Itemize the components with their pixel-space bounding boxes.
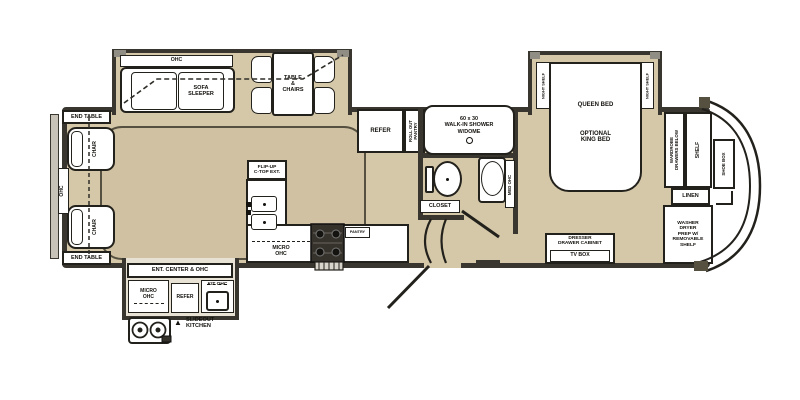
queen-bed: QUEEN BED OPTIONAL KING BED (549, 62, 642, 192)
tv-box: TV BOX (550, 250, 610, 262)
outdoor-micro-label: MICRO OHC (140, 289, 157, 300)
roll-out-pantry-label: ROLL OUT PANTRY (406, 110, 422, 152)
faucet-icon (246, 202, 251, 207)
kit-ohc-label: KIT OHC (208, 282, 228, 287)
refrigerator: REFER (357, 109, 404, 153)
end-table-top: END TABLE (62, 110, 111, 124)
sofa-cushion (131, 72, 177, 110)
flush-dot-icon (446, 178, 449, 181)
faucet-dot-icon (263, 221, 266, 224)
pantry-cabinet: PANTRY (345, 227, 370, 238)
ohc-label: OHC (171, 58, 183, 64)
end-table-bottom: END TABLE (62, 251, 111, 265)
outdoor-micro-ohc: MICRO OHC (128, 280, 169, 313)
recliner-back (71, 209, 83, 245)
linen-label: LINEN (682, 193, 699, 199)
washer-label: WASHER DRYER PREP W/ REMOVABLE SHELF (673, 221, 704, 248)
shower-label: 60 x 30 WALK-IN SHOWER W/DOME (445, 116, 494, 134)
slideout-kitchen-arrow-icon: ▲ (174, 318, 182, 327)
pantry-label: PANTRY (350, 230, 365, 234)
slideout-endcap (530, 52, 540, 59)
entertainment-center: ENT. CENTER & OHC (127, 263, 233, 278)
entry-door-swing (388, 266, 429, 308)
bedroom-step-threshold (476, 260, 500, 266)
flip-up-label: FLIP-UP C-TOP EXT. (254, 165, 280, 176)
night-shelf-left-label: NIGHT SHELF (538, 63, 548, 108)
linen-cabinet: LINEN (671, 188, 710, 205)
outdoor-refer-label: REFER (177, 295, 194, 301)
faucet-dot-icon (216, 300, 219, 303)
dresser-label: DRESSER DRAWER CABINET (558, 236, 602, 247)
overhead-cabinet-strip: OHC (120, 55, 233, 67)
dinette-chair (314, 87, 335, 114)
faucet-icon (246, 210, 251, 215)
ent-center-label: ENT. CENTER & OHC (152, 267, 208, 273)
slideout-kitchen-label: SLIDEOUT KITCHEN (186, 317, 234, 330)
shoe-box-step (716, 191, 732, 204)
dinette-chair (314, 56, 335, 83)
night-shelf-right-label: NIGHT SHELF (642, 63, 652, 108)
recliner-back (71, 131, 83, 167)
flip-up-countertop: FLIP-UP C-TOP EXT. (247, 160, 287, 180)
slideout-endcap (650, 52, 660, 59)
bath-sink (481, 161, 504, 196)
dinette-table: TABLE & CHAIRS (272, 52, 314, 116)
outdoor-sink (206, 291, 229, 311)
shelf-label: SHELF (693, 113, 705, 187)
closet-label: CLOSET (429, 203, 451, 209)
rear-ohc-label: OHC (58, 171, 68, 211)
slideout-endcap (337, 50, 349, 57)
entry-door-gap (424, 261, 461, 268)
faucet-dot-icon (263, 203, 266, 206)
end-table-label: END TABLE (71, 255, 102, 261)
toilet-bowl (433, 161, 462, 197)
wardrobe-label: WARDROBE DRAWERS BELOW (666, 113, 684, 187)
wall-closet (418, 215, 464, 220)
washer-dryer-prep: WASHER DRYER PREP W/ REMOVABLE SHELF (663, 205, 713, 264)
dashed-line (134, 303, 164, 304)
chair-bottom-label: CHAIR (91, 207, 101, 247)
shoe-box-label: SHOE BOX (718, 140, 730, 188)
outdoor-cooktop (128, 317, 171, 344)
end-table-label: END TABLE (71, 114, 102, 120)
refer-label: REFER (370, 128, 390, 135)
tv-box-label: TV BOX (570, 253, 589, 259)
dome-icon (466, 137, 473, 144)
med-ohc-label: MED OHC (505, 163, 515, 207)
king-bed-label: OPTIONAL KING BED (580, 131, 611, 144)
chair-top-label: CHAIR (91, 129, 101, 169)
outdoor-refer: REFER (171, 283, 199, 313)
queen-bed-label: QUEEN BED (578, 102, 614, 109)
micro-ohc-label: MICRO OHC (272, 246, 289, 258)
floor-plan: OHC SOFA SLEEPER TABLE & CHAIRS QUEEN BE… (0, 0, 800, 400)
micro-ohc-zone: MICRO OHC (252, 241, 310, 261)
sofa-cushion: SOFA SLEEPER (178, 72, 224, 110)
table-chairs-label: TABLE & CHAIRS (282, 75, 303, 93)
kitchen-sink-basin (251, 196, 277, 212)
kitchen-sink-basin (251, 214, 277, 230)
closet: CLOSET (420, 200, 460, 213)
walk-in-shower: 60 x 30 WALK-IN SHOWER W/DOME (423, 105, 515, 155)
sofa-sleeper-label: SOFA SLEEPER (188, 85, 214, 97)
dinette-chair (251, 56, 272, 83)
dinette-chair (251, 87, 272, 114)
